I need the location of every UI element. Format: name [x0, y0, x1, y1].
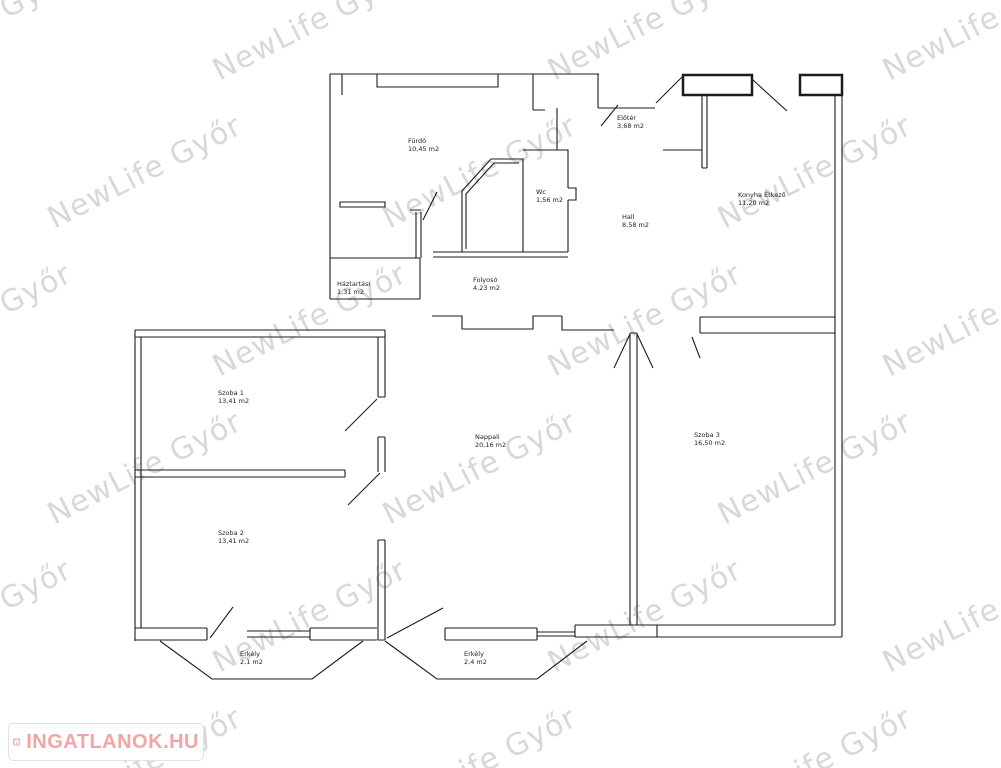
logo-text: INGATLANOK.HU	[26, 731, 199, 754]
room-label: Erkély2,1 m2	[240, 651, 263, 666]
room-label: Fürdő10,45 m2	[408, 138, 439, 153]
room-label: Nappali20,16 m2	[475, 434, 506, 449]
room-area: 2,4 m2	[464, 659, 487, 667]
room-label: Folyosó4,23 m2	[473, 277, 500, 292]
room-area: 2,1 m2	[240, 659, 263, 667]
room-area: 1,31 m2	[337, 289, 370, 297]
house-icon	[13, 727, 20, 757]
room-label: Erkély2,4 m2	[464, 651, 487, 666]
floorplan-image: NewLife GyőrNewLife GyőrNewLife GyőrNewL…	[0, 0, 1001, 768]
room-area: 3,68 m2	[617, 123, 644, 131]
room-label: Szoba 213,41 m2	[218, 530, 249, 545]
room-area: 16,50 m2	[694, 440, 725, 448]
room-labels-layer: Fürdő10,45 m2Előtér3,68 m2Wc1,56 m2Hall8…	[0, 0, 1001, 768]
room-label: Konyha Étkező11,20 m2	[738, 192, 786, 207]
room-area: 1,56 m2	[536, 197, 563, 205]
room-area: 13,41 m2	[218, 538, 249, 546]
room-label: Hall8,58 m2	[622, 214, 649, 229]
room-area: 8,58 m2	[622, 222, 649, 230]
room-area: 4,23 m2	[473, 285, 500, 293]
room-area: 13,41 m2	[218, 398, 249, 406]
room-label: Háztartási1,31 m2	[337, 281, 370, 296]
room-area: 20,16 m2	[475, 442, 506, 450]
room-area: 10,45 m2	[408, 146, 439, 154]
room-label: Előtér3,68 m2	[617, 115, 644, 130]
room-label: Szoba 113,41 m2	[218, 390, 249, 405]
room-label: Wc1,56 m2	[536, 189, 563, 204]
ingatlanok-logo: INGATLANOK.HU	[8, 723, 204, 761]
room-area: 11,20 m2	[738, 200, 786, 208]
room-label: Szoba 316,50 m2	[694, 432, 725, 447]
